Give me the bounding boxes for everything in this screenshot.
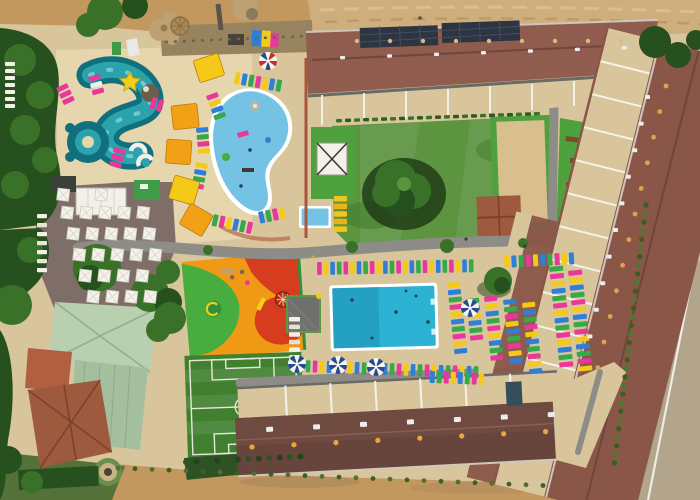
terrace-umbrella xyxy=(67,227,80,240)
toddler-pool-area xyxy=(299,206,331,228)
mushroom-top xyxy=(253,104,257,108)
turtle-flipper-2 xyxy=(65,152,75,162)
aerial-photo-stage xyxy=(0,0,700,500)
person-dot xyxy=(418,16,422,20)
slide-pool-dot xyxy=(134,148,142,156)
pool-ladder-2 xyxy=(431,329,435,335)
terrace-umbrella xyxy=(98,269,111,282)
frog-feature xyxy=(222,153,230,161)
terrace-umbrella xyxy=(105,227,118,240)
terrace-umbrella xyxy=(136,269,149,282)
building-south xyxy=(233,371,567,476)
info-sign xyxy=(112,42,121,55)
kiosk-sign xyxy=(140,184,148,189)
astro-square-pergola xyxy=(311,127,355,199)
pool-equipment-tarp xyxy=(505,381,522,406)
person-dot xyxy=(415,295,418,298)
sun-canopy xyxy=(171,103,199,130)
well-mouth xyxy=(104,468,112,476)
terrace-umbrella xyxy=(80,206,93,219)
terrace-umbrella xyxy=(79,269,92,282)
terrace-umbrella xyxy=(149,248,162,261)
terrace-umbrella xyxy=(99,206,112,219)
waterfall-foam xyxy=(143,86,149,92)
sun-canopy xyxy=(165,139,192,165)
terrace-umbrella xyxy=(92,248,105,261)
dirt-blotch xyxy=(240,476,360,488)
terrace-umbrella xyxy=(130,248,143,261)
terrace-umbrella xyxy=(73,248,86,261)
resort-aerial-photo xyxy=(0,0,700,500)
pinwheel-umbrella xyxy=(288,355,306,373)
terrace-umbrella xyxy=(87,290,100,303)
person-dot xyxy=(311,255,314,258)
turtle-flipper xyxy=(65,123,75,133)
main-pool-area xyxy=(329,283,439,352)
terrace-umbrella xyxy=(111,248,124,261)
terrace-umbrella xyxy=(106,290,119,303)
play-equipment-beam xyxy=(221,268,234,273)
terrace-umbrella xyxy=(137,206,150,219)
turtle-shell xyxy=(82,136,94,148)
person-dot xyxy=(464,237,467,240)
person-dot xyxy=(405,290,408,293)
terrace-umbrella xyxy=(117,269,130,282)
pool-bench xyxy=(242,168,254,172)
person-dot xyxy=(371,337,374,340)
person-dot xyxy=(426,320,430,324)
terrace-umbrella xyxy=(118,206,131,219)
person-dot xyxy=(523,244,526,247)
lifeguard-parasol xyxy=(316,293,322,299)
pool-ladder xyxy=(431,299,435,305)
pinwheel-umbrella xyxy=(329,356,347,374)
terrace-umbrella xyxy=(124,227,137,240)
kids-swimmer xyxy=(248,148,252,152)
pinwheel-umbrella xyxy=(461,299,479,317)
person-dot xyxy=(350,298,354,302)
terrace-umbrella xyxy=(61,206,74,219)
terrace-umbrella xyxy=(86,227,99,240)
terrace-umbrella xyxy=(125,290,138,303)
kids-swimmer-2 xyxy=(239,184,243,188)
green-kiosk xyxy=(134,180,160,200)
person-dot xyxy=(394,310,398,314)
terrace-umbrella xyxy=(143,227,156,240)
toddler-pool-loungers xyxy=(334,196,347,232)
pinwheel-umbrella xyxy=(367,358,385,376)
terrace-umbrella xyxy=(57,188,70,201)
candy-stripe-umbrella xyxy=(259,52,277,70)
entry-wall xyxy=(218,4,221,30)
slide-pool-dot-2 xyxy=(142,159,150,167)
terrace-umbrella xyxy=(144,290,157,303)
lawn-tree-4 xyxy=(372,179,400,207)
pool-toy-blue xyxy=(265,137,271,143)
terrace-umbrella xyxy=(95,188,108,201)
tree-highlight xyxy=(397,177,411,191)
